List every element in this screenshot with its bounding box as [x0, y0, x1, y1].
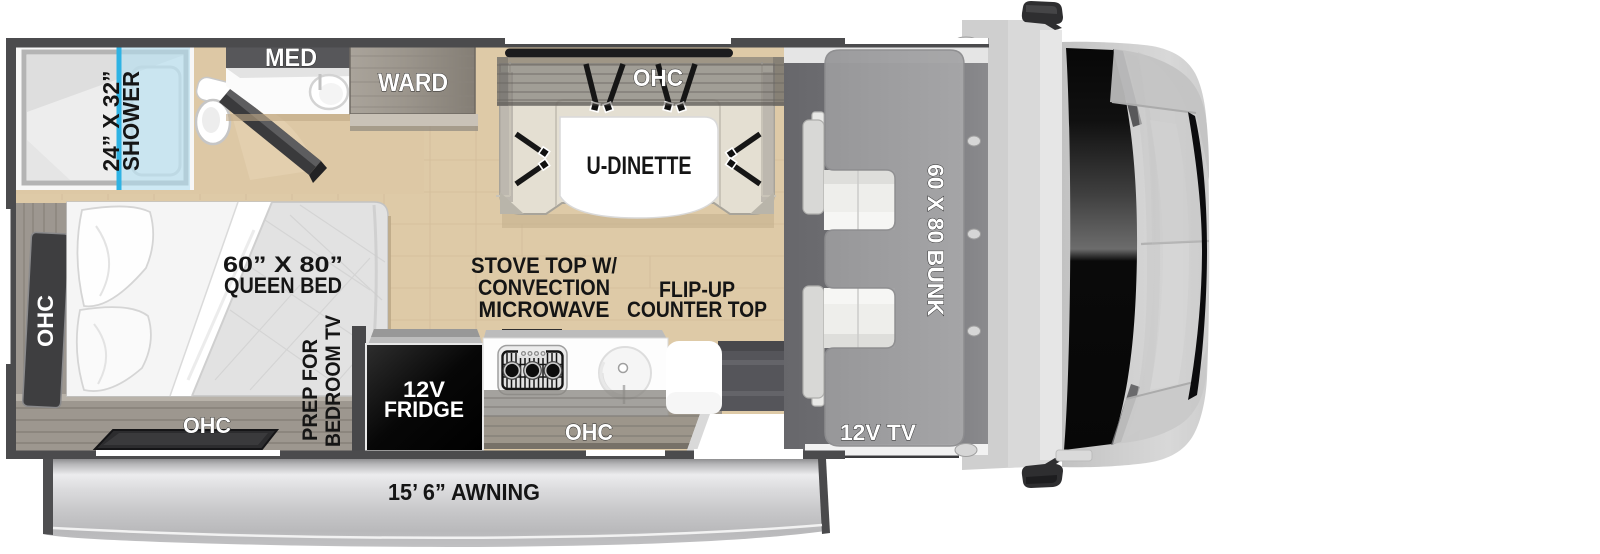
svg-text:60 X 80 BUNK: 60 X 80 BUNK [923, 164, 948, 316]
svg-text:COUNTER TOP: COUNTER TOP [627, 297, 767, 322]
svg-text:OHC: OHC [565, 419, 613, 445]
svg-text:OHC: OHC [633, 65, 683, 92]
svg-text:FRIDGE: FRIDGE [384, 397, 464, 422]
svg-text:15’ 6” AWNING: 15’ 6” AWNING [388, 479, 540, 505]
svg-text:QUEEN BED: QUEEN BED [224, 273, 342, 298]
svg-text:PREP FOR: PREP FOR [299, 339, 322, 441]
svg-text:OHC: OHC [183, 413, 231, 438]
svg-text:OHC: OHC [33, 295, 58, 347]
svg-text:12V TV: 12V TV [840, 420, 916, 445]
svg-text:BEDROOM TV: BEDROOM TV [322, 315, 345, 447]
svg-text:U-DINETTE: U-DINETTE [587, 152, 692, 180]
svg-text:SHOWER: SHOWER [118, 71, 144, 171]
svg-text:MICROWAVE: MICROWAVE [479, 297, 610, 322]
svg-text:MED: MED [265, 44, 317, 72]
svg-text:WARD: WARD [378, 69, 448, 97]
